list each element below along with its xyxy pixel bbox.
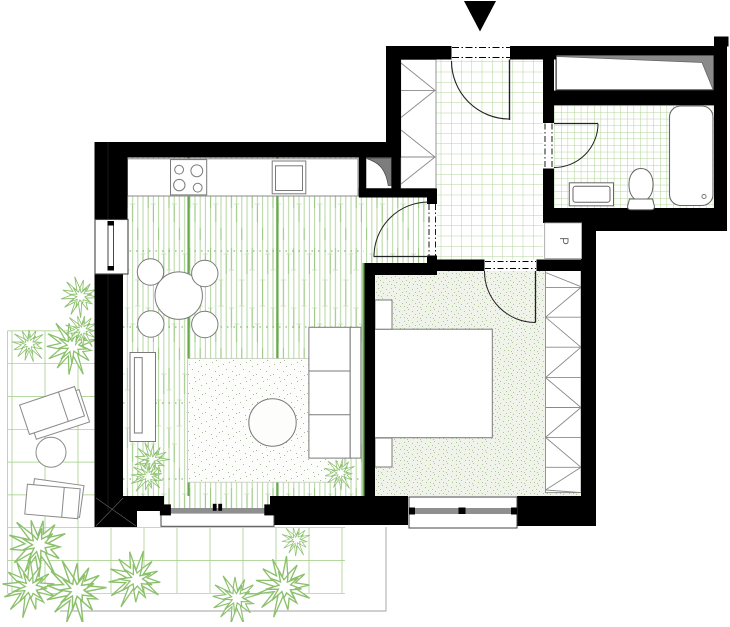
svg-text:P: P [557, 237, 569, 245]
